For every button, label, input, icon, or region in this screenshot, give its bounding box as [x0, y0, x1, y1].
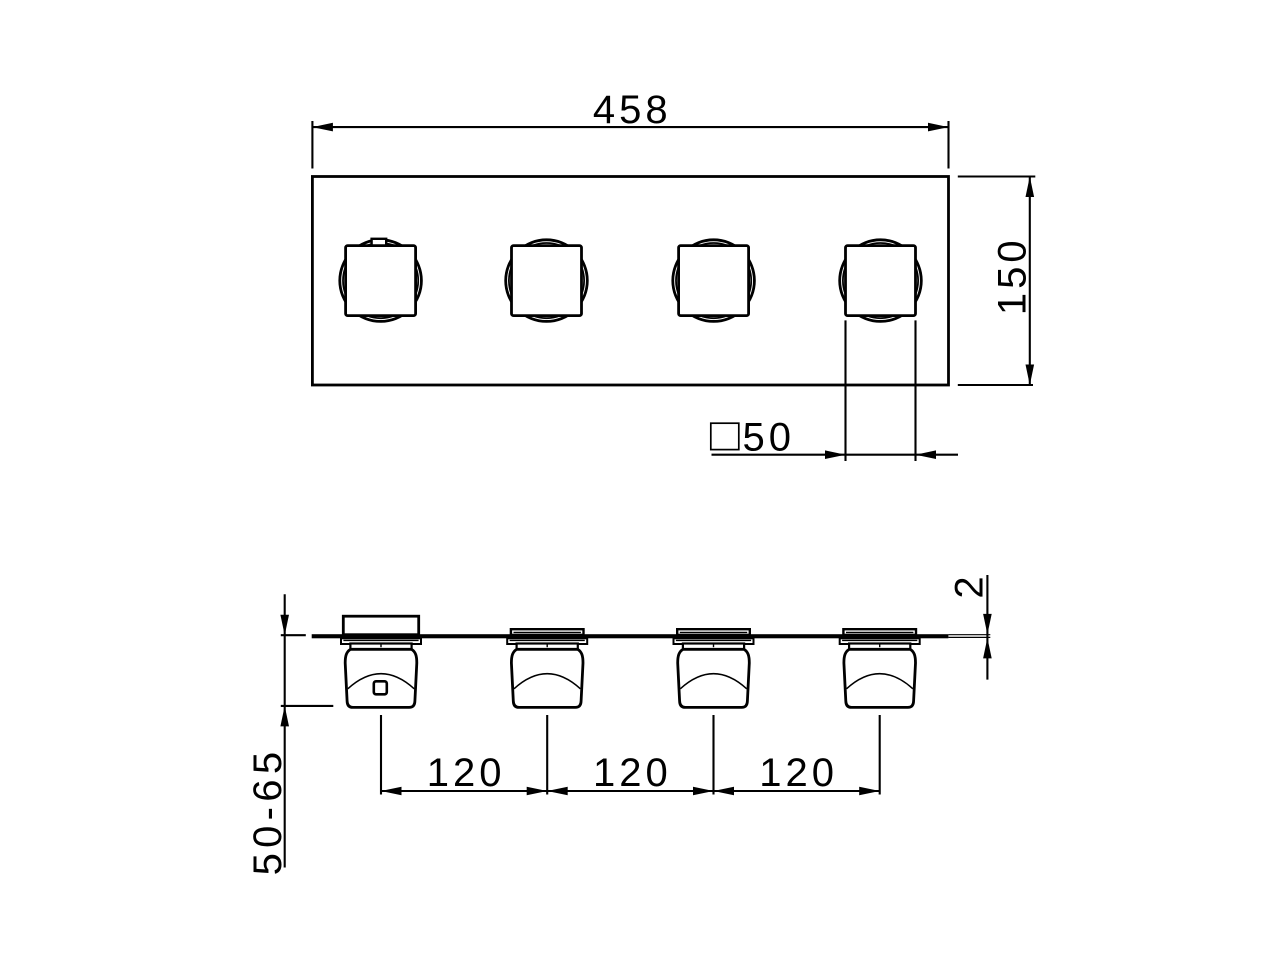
svg-text:50-65: 50-65 — [246, 747, 290, 876]
svg-text:120: 120 — [759, 751, 838, 795]
svg-text:2: 2 — [947, 572, 991, 598]
svg-text:120: 120 — [593, 751, 672, 795]
svg-text:120: 120 — [427, 751, 506, 795]
svg-text:458: 458 — [593, 88, 672, 132]
svg-text:150: 150 — [991, 236, 1035, 315]
svg-text:50: 50 — [743, 416, 796, 460]
